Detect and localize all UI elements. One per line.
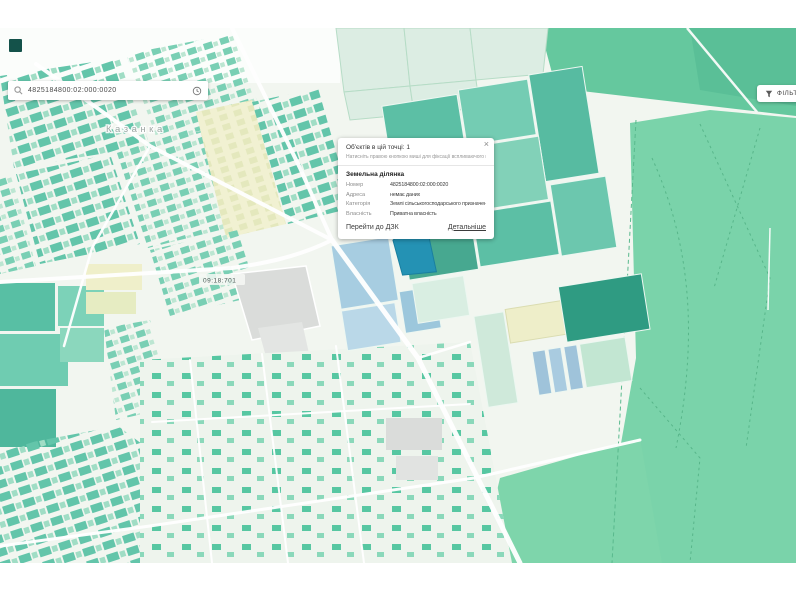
field-value: немає даних bbox=[390, 192, 486, 198]
field-label: Адреса bbox=[346, 192, 386, 198]
field-value: Приватна власність bbox=[390, 211, 486, 217]
field-label: Власність bbox=[346, 211, 386, 217]
place-label: Казанка bbox=[106, 124, 166, 135]
field-row-number: Номер 4825184800:02:000:0020 bbox=[346, 182, 486, 188]
zone-label: 09:18:701 bbox=[199, 274, 245, 285]
search-icon bbox=[14, 86, 23, 95]
field-row-ownership: Власність Приватна власність bbox=[346, 211, 486, 217]
search-input[interactable] bbox=[28, 87, 187, 94]
map-container: Казанка 09:18:701 bbox=[0, 28, 796, 563]
close-icon[interactable]: × bbox=[484, 140, 489, 149]
parcel-info-popup: × Об'єктів в цій точці: 1 Натисніть прав… bbox=[338, 138, 494, 239]
field-label: Номер bbox=[346, 182, 386, 188]
svg-text:09:18:701: 09:18:701 bbox=[203, 278, 236, 285]
field-row-address: Адреса немає даних bbox=[346, 192, 486, 198]
popup-divider bbox=[338, 165, 494, 166]
field-row-category: Категорія Землі сільськогосподарського п… bbox=[346, 201, 486, 207]
map-canvas[interactable]: Казанка 09:18:701 bbox=[0, 28, 796, 563]
filters-button-label: ФІЛЬТРИ bbox=[777, 90, 796, 97]
goto-dzk-link[interactable]: Перейти до ДЗК bbox=[346, 224, 399, 231]
details-link[interactable]: Детальніше bbox=[448, 224, 486, 231]
popup-title: Об'єктів в цій точці: 1 bbox=[346, 144, 486, 151]
filter-icon bbox=[765, 90, 773, 98]
map-logo-square bbox=[9, 39, 22, 52]
popup-links: Перейти до ДЗК Детальніше bbox=[346, 224, 486, 231]
popup-section-title: Земельна ділянка bbox=[346, 171, 486, 178]
filters-button[interactable]: ФІЛЬТРИ bbox=[757, 85, 796, 102]
popup-hint: Натисніть правою кнопкою миші для фіксац… bbox=[346, 154, 486, 160]
history-icon[interactable] bbox=[192, 86, 202, 96]
field-value: 4825184800:02:000:0020 bbox=[390, 182, 486, 188]
search-bar[interactable] bbox=[8, 81, 208, 100]
field-label: Категорія bbox=[346, 201, 386, 207]
field-value: Землі сільськогосподарського призначення bbox=[390, 201, 486, 207]
